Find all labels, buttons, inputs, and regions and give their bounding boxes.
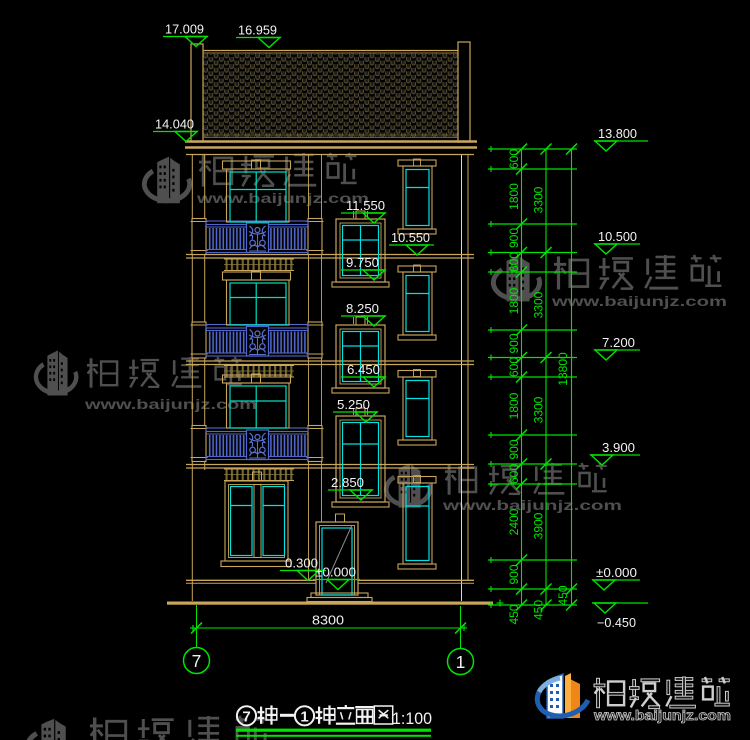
svg-text:11.550: 11.550 (346, 199, 385, 213)
svg-text:1800: 1800 (507, 287, 521, 314)
svg-text:900: 900 (507, 564, 521, 584)
svg-text:1800: 1800 (507, 183, 521, 210)
svg-text:7: 7 (192, 651, 202, 671)
svg-text:1: 1 (456, 652, 466, 672)
svg-text:600: 600 (507, 464, 521, 484)
svg-text:13800: 13800 (556, 352, 570, 386)
svg-text:1800: 1800 (507, 392, 521, 419)
svg-text:7.200: 7.200 (602, 336, 635, 350)
svg-text:1: 1 (300, 709, 308, 726)
svg-text:www.baijunjz.com: www.baijunjz.com (551, 293, 727, 309)
svg-text:www.baijunjz.com: www.baijunjz.com (196, 190, 369, 206)
svg-text:14.040: 14.040 (155, 118, 194, 132)
svg-text:17.009: 17.009 (165, 23, 204, 37)
svg-text:16.959: 16.959 (238, 24, 277, 38)
svg-text:5.250: 5.250 (337, 398, 370, 412)
svg-text:3300: 3300 (532, 291, 546, 318)
svg-text:10.550: 10.550 (391, 231, 430, 245)
svg-text:9.750: 9.750 (346, 256, 379, 270)
svg-text:600: 600 (507, 252, 521, 272)
svg-text:7: 7 (242, 709, 250, 726)
svg-text:1:100: 1:100 (392, 709, 432, 728)
svg-text:10.500: 10.500 (598, 230, 637, 244)
svg-text:450: 450 (556, 585, 570, 605)
svg-text:450: 450 (507, 604, 521, 624)
svg-text:−0.450: −0.450 (597, 616, 636, 630)
svg-text:3900: 3900 (532, 512, 546, 539)
svg-text:6.450: 6.450 (347, 363, 380, 377)
svg-text:8.250: 8.250 (346, 302, 379, 316)
svg-text:900: 900 (507, 228, 521, 248)
svg-text:2400: 2400 (507, 508, 521, 535)
svg-text:±0.000: ±0.000 (596, 566, 637, 580)
svg-text:±0.000: ±0.000 (315, 566, 356, 580)
svg-text:13.800: 13.800 (598, 127, 637, 141)
svg-text:450: 450 (532, 600, 546, 620)
svg-text:8300: 8300 (312, 614, 344, 628)
svg-text:3300: 3300 (532, 396, 546, 423)
svg-text:3.900: 3.900 (602, 441, 635, 455)
svg-text:600: 600 (507, 149, 521, 169)
svg-text:900: 900 (507, 333, 521, 353)
svg-text:0.300: 0.300 (285, 557, 318, 571)
svg-text:2.850: 2.850 (331, 476, 364, 490)
svg-text:900: 900 (507, 439, 521, 459)
svg-text:www.baijunjz.com: www.baijunjz.com (84, 397, 257, 412)
svg-text:www.baijunjz.com: www.baijunjz.com (593, 708, 731, 723)
svg-text:3300: 3300 (532, 186, 546, 213)
svg-text:www.baijunjz.com: www.baijunjz.com (441, 498, 622, 513)
svg-text:600: 600 (507, 357, 521, 377)
